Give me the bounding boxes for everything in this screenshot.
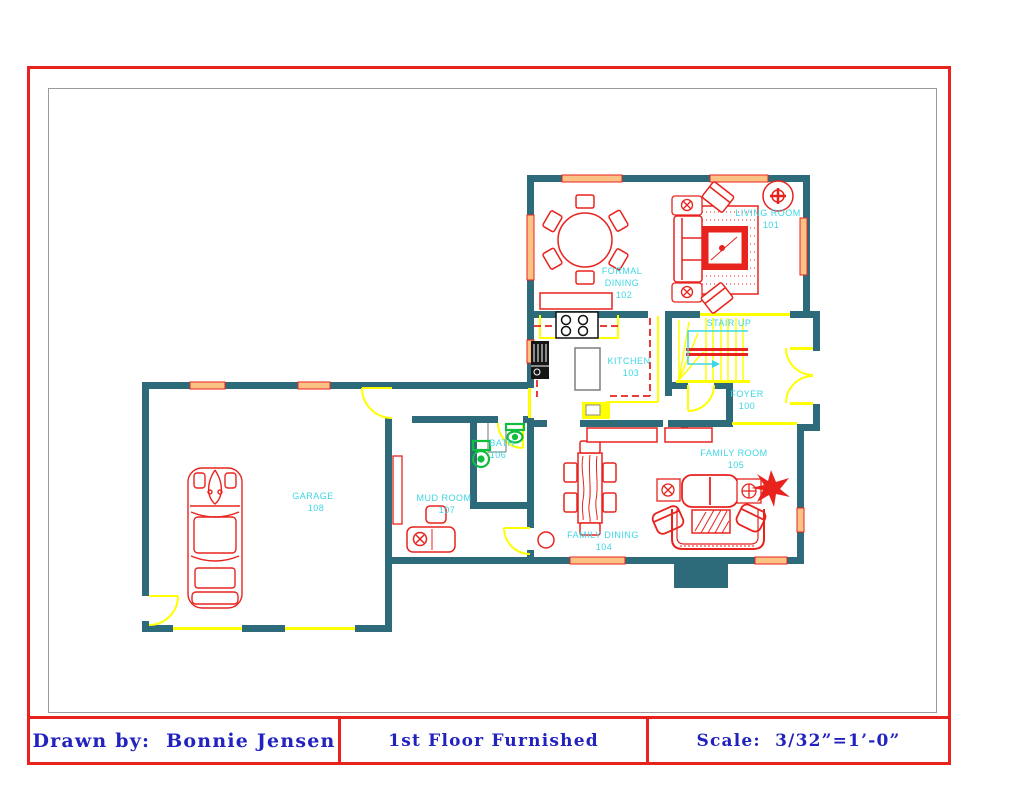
sheet-title-text: 1st Floor Furnished [388,731,599,751]
room-number-105: 105 [728,460,745,470]
car [188,468,242,608]
end-table-bottom [672,283,702,302]
bench [393,456,402,524]
hatched-rug [692,510,730,533]
drawn-by-name: Bonnie Jensen [166,730,335,752]
armchair-top [702,181,735,213]
ceiling-fan-symbol [763,181,793,211]
room-label-family-room: FAMILY ROOM [700,448,767,458]
title-block: Drawn by: Bonnie Jensen 1st Floor Furnis… [27,716,951,765]
kitchen-sink-cabinet [582,402,610,419]
stair-direction-arrow [712,360,720,368]
sofa [674,216,702,282]
stair-handrail [686,348,748,356]
club-chair-right [734,502,767,533]
desk [407,527,455,552]
room-label-living-room: LIVING ROOM [735,208,801,218]
planter [538,532,554,548]
room-number-100: 100 [739,401,756,411]
room-number-101: 101 [763,220,780,230]
sideboard-left [587,428,657,442]
end-table [657,479,680,501]
buffet [540,293,612,309]
title-block-drawn-by: Drawn by: Bonnie Jensen [30,719,338,762]
armchair-bottom [701,282,734,314]
mud-room-furniture [393,456,455,552]
living-room-furniture [672,181,793,314]
room-number-102: 102 [616,290,633,300]
kitchen-island [575,348,600,390]
family-room-furniture [651,470,790,549]
room-label-formal-dining-2: DINING [605,278,640,288]
refrigerator [531,341,549,379]
room-label-foyer: FOYER [730,389,764,399]
room-number-104: 104 [596,542,613,552]
sideboard-right [665,428,712,442]
room-label-formal-dining-1: FORMAL [602,266,643,276]
room-label-bath: BATH [489,438,514,448]
stove [556,312,598,338]
end-table-top [672,196,702,215]
room-number-106: 106 [490,450,507,460]
room-number-107: 107 [439,505,456,515]
room-label-kitchen: KITCHEN [607,356,650,366]
drawing-sheet: LIVING ROOM 101 FORMAL DINING 102 KITCHE… [0,0,1024,791]
room-number-103: 103 [623,368,640,378]
room-number-108: 108 [308,503,325,513]
stair-up-label: STAIR UP [707,318,752,328]
title-block-scale: Scale: 3/32”=1’-0” [646,719,948,762]
round-dining-table [558,213,612,267]
loveseat [682,475,738,507]
tv-table [737,479,761,503]
room-label-family-dining: FAMILY DINING [567,530,639,540]
title-block-sheet-title: 1st Floor Furnished [338,719,646,762]
fireplace [674,557,728,588]
club-chair-left [651,504,686,535]
drawn-by-label: Drawn by: [32,730,150,752]
floor-plan-canvas: LIVING ROOM 101 FORMAL DINING 102 KITCHE… [0,0,1024,791]
scale-text: Scale: 3/32”=1’-0” [697,731,901,751]
room-label-mud-room: MUD ROOM [417,493,472,503]
room-label-garage: GARAGE [292,491,334,501]
